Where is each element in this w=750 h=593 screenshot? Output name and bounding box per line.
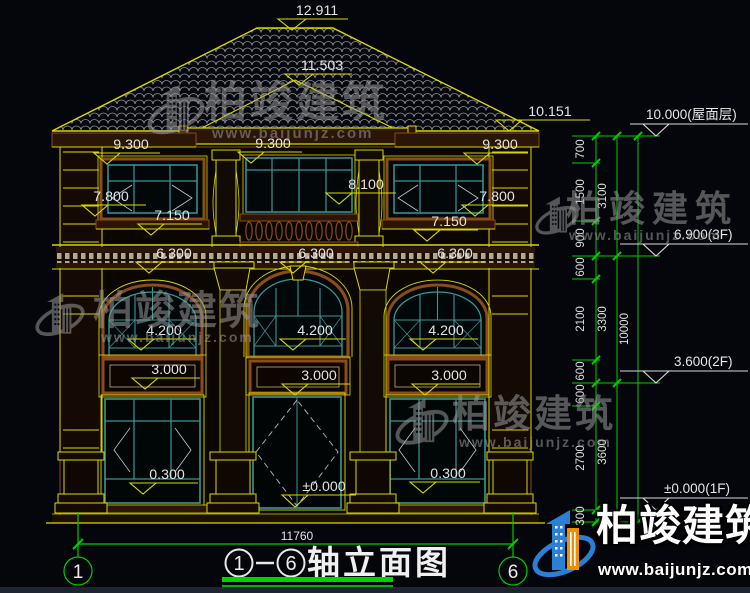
dim-ridge2: 11.503 [301, 58, 343, 74]
dim-total-width: 11760 [281, 529, 314, 543]
watermark-brand: 柏竣建筑 [204, 82, 388, 125]
chain-total: 10000 [619, 313, 631, 345]
elevation-marker-texts: 10.000(屋面层) 6.900(3F) 3.600(2F) ±0.000(1… [646, 107, 737, 496]
site-logo-brand[interactable]: 柏竣建筑 [596, 505, 750, 547]
title-axis-from: 1 [233, 553, 244, 575]
dim-4200-right: 4.200 [428, 323, 464, 339]
dim-4200-mid: 4.200 [297, 323, 333, 339]
dim-7800-right: 7.800 [479, 189, 515, 205]
watermark-url: www.baijunjz.com [459, 435, 612, 449]
dim-0300-right: 0.300 [430, 466, 466, 482]
title-text: 轴立面图 [307, 544, 451, 581]
bottom-strip [0, 587, 750, 593]
elevation-markers [620, 124, 748, 510]
chain-floor: 3300 [597, 306, 609, 332]
chain-seg: 600 [575, 257, 587, 276]
cad-viewport: 12.911 11.503 10.151 9.300 9.300 9.300 7… [0, 0, 750, 593]
dim-7800-left: 7.800 [93, 189, 129, 205]
dim-0300-left: 0.300 [149, 467, 185, 483]
watermark-brand: 柏竣建筑 [566, 191, 738, 227]
plinth [46, 514, 545, 523]
dim-3000-right: 3.000 [431, 368, 467, 384]
chain-seg: 300 [575, 506, 587, 525]
site-logo-icon[interactable] [530, 510, 599, 582]
dim-3000-left: 3.000 [151, 362, 187, 378]
window-1f-left [98, 395, 207, 513]
dim-6300-mid: 6.300 [298, 246, 334, 262]
dim-9300-right: 9.300 [482, 137, 518, 153]
watermark-url: www.baijunjz.com [101, 330, 254, 344]
elev-roof: 10.000(屋面层) [646, 107, 737, 122]
watermark-brand: 柏竣建筑 [452, 396, 616, 434]
chain-seg: 700 [575, 139, 587, 158]
title-axis-to: 6 [285, 553, 296, 575]
dim-7150-right: 7.150 [431, 214, 467, 230]
dim-6300-left: 6.300 [156, 246, 192, 262]
watermark-brand: 柏竣建筑 [93, 291, 261, 331]
drawing-title: 1 6 轴立面图 [222, 544, 451, 588]
axis-number-start: 1 [73, 562, 84, 583]
title-underline-thick [222, 577, 393, 582]
dim-7150-left: 7.150 [154, 208, 190, 224]
dim-eave: 10.151 [528, 104, 572, 120]
watermark-url: www.baijunjz.com [569, 228, 722, 242]
dim-0000: ±0.000 [302, 479, 345, 495]
site-logo-url[interactable]: www.baijunjz.com [598, 560, 750, 580]
dim-9300-left: 9.300 [113, 137, 149, 153]
axis-number-end: 6 [508, 562, 519, 583]
chain-seg: 600 [575, 361, 587, 380]
dim-6300-right: 6.300 [437, 246, 473, 262]
chain-seg: 2100 [575, 306, 587, 332]
dim-peak: 12.911 [296, 3, 338, 19]
dim-3000-mid: 3.000 [301, 368, 337, 384]
watermark-url: www.baijunjz.com [212, 126, 373, 141]
elev-1f: ±0.000(1F) [664, 481, 730, 496]
dim-8100: 8.100 [348, 177, 384, 193]
elev-2f: 3.600(2F) [674, 354, 733, 369]
